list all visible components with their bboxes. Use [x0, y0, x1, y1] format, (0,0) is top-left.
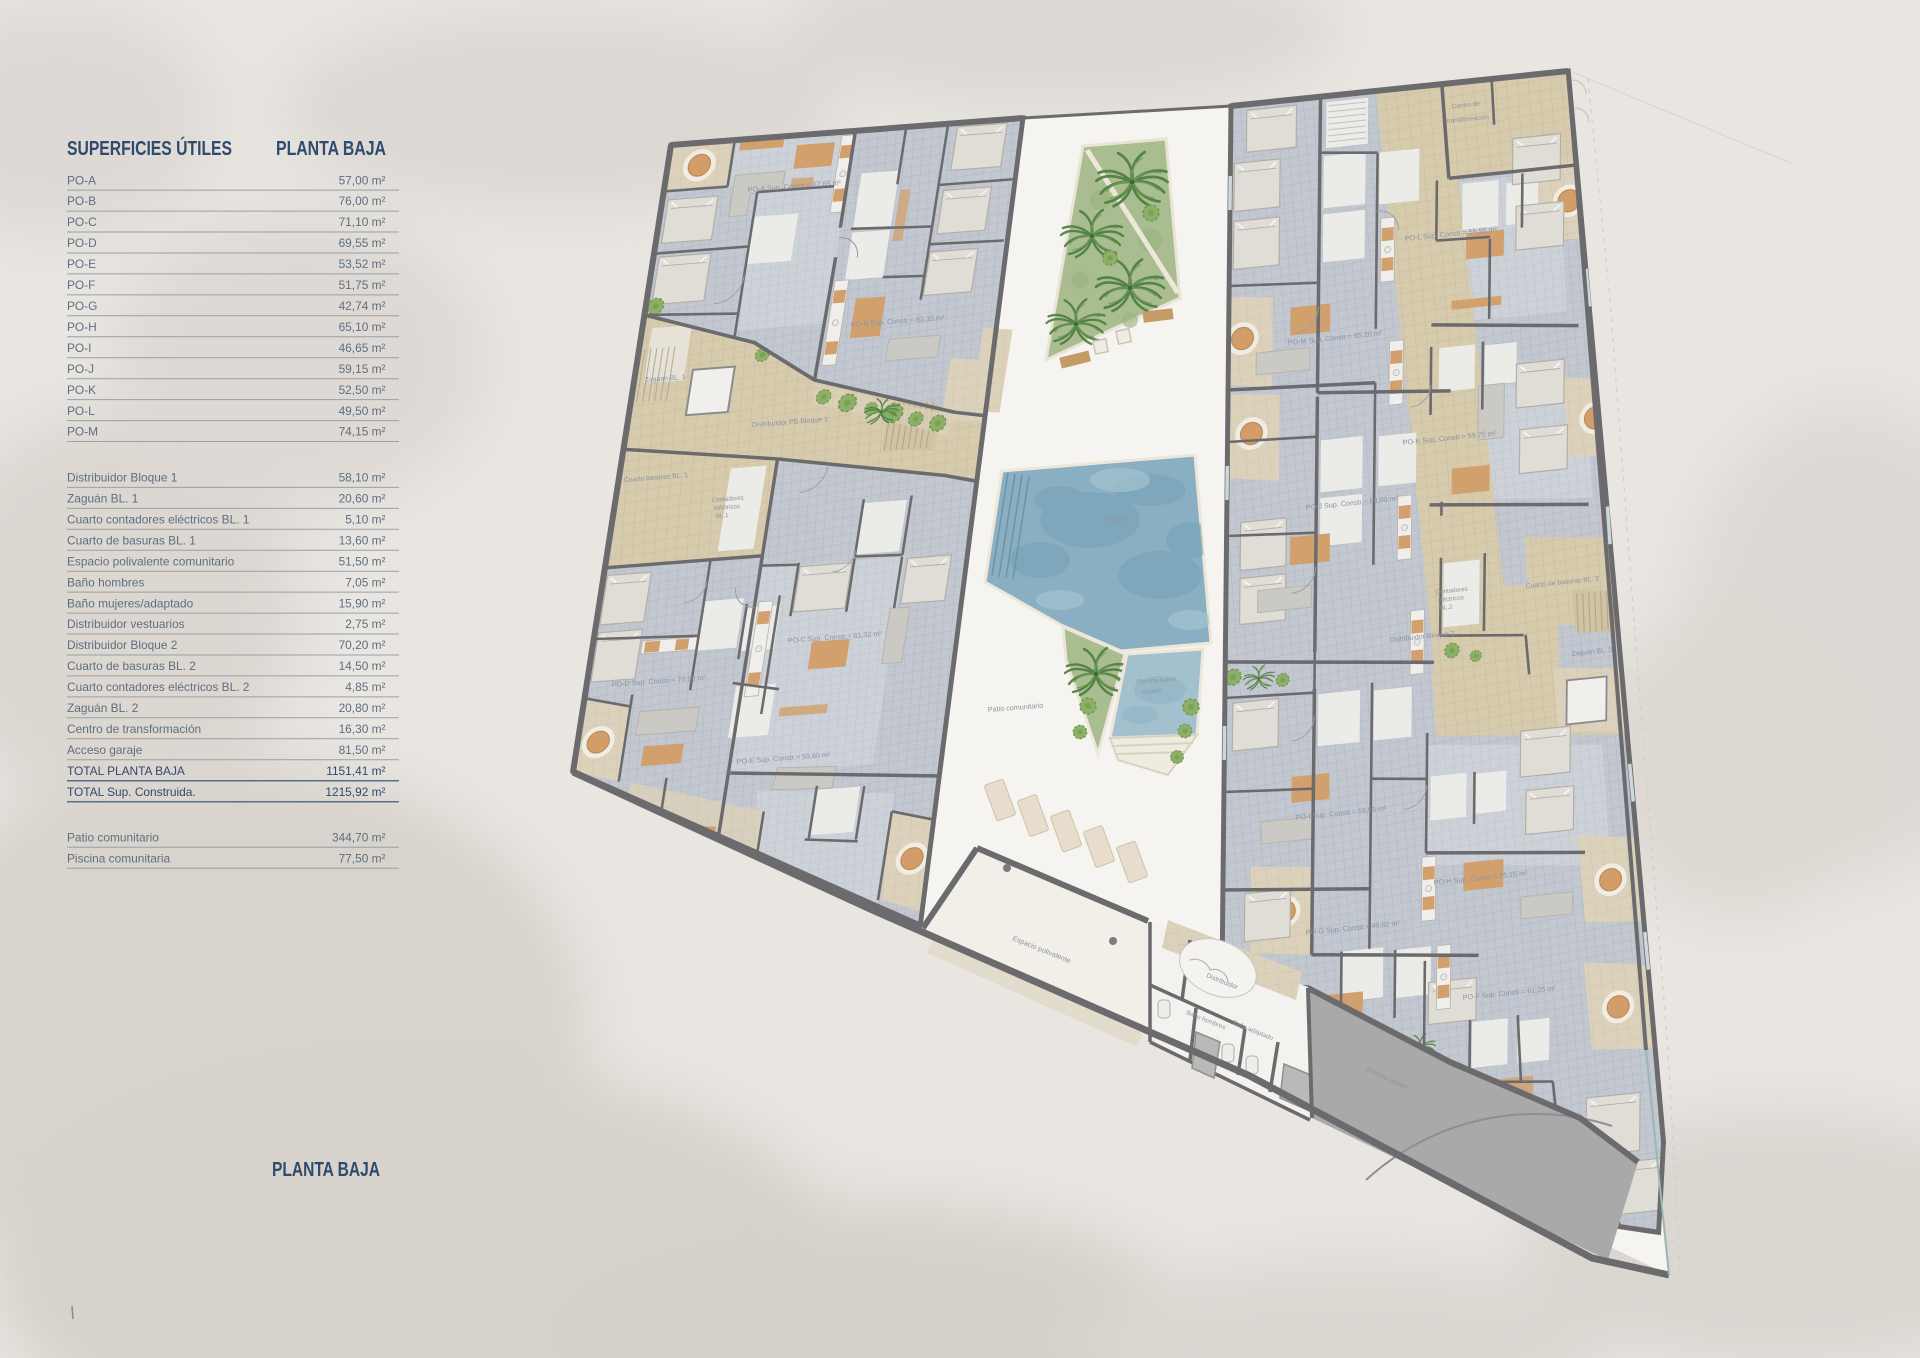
svg-text:46,65 m²: 46,65 m² — [339, 341, 386, 355]
svg-text:7,05 m²: 7,05 m² — [345, 575, 385, 589]
svg-text:PO-L: PO-L — [67, 404, 95, 418]
svg-text:1215,92 m²: 1215,92 m² — [325, 785, 385, 799]
svg-text:344,70 m²: 344,70 m² — [332, 831, 386, 845]
svg-text:Centro de transformación: Centro de transformación — [67, 722, 201, 736]
svg-text:74,15 m²: 74,15 m² — [339, 425, 386, 439]
svg-text:16,30 m²: 16,30 m² — [339, 722, 386, 736]
svg-text:53,52 m²: 53,52 m² — [339, 257, 386, 271]
svg-text:49,50 m²: 49,50 m² — [339, 404, 386, 418]
svg-text:4,85 m²: 4,85 m² — [345, 680, 385, 694]
svg-text:BL.2: BL.2 — [1439, 604, 1453, 612]
svg-text:PO-H: PO-H — [67, 320, 97, 334]
svg-text:TOTAL PLANTA BAJA: TOTAL PLANTA BAJA — [67, 764, 185, 778]
svg-text:77,50 m²: 77,50 m² — [339, 852, 386, 866]
svg-text:PO-I: PO-I — [67, 341, 91, 355]
svg-text:Cuarto contadores eléctricos B: Cuarto contadores eléctricos BL. 1 — [67, 513, 250, 527]
svg-text:57,00 m²: 57,00 m² — [339, 173, 386, 187]
svg-text:76,00 m²: 76,00 m² — [339, 194, 386, 208]
svg-text:PO-B: PO-B — [67, 194, 96, 208]
svg-text:Piscina comunitaria: Piscina comunitaria — [67, 852, 170, 866]
svg-text:Zaguán BL. 2: Zaguán BL. 2 — [67, 701, 139, 715]
svg-text:Patio comunitario: Patio comunitario — [67, 831, 159, 845]
svg-text:13,60 m²: 13,60 m² — [339, 534, 386, 548]
svg-text:PLANTA BAJA: PLANTA BAJA — [272, 1158, 380, 1181]
svg-text:5,10 m²: 5,10 m² — [345, 513, 385, 527]
svg-text:PO-E: PO-E — [67, 257, 96, 271]
svg-text:PO-D: PO-D — [67, 236, 97, 250]
svg-text:Baño hombres: Baño hombres — [67, 575, 144, 589]
svg-text:Cuarto de basuras BL. 2: Cuarto de basuras BL. 2 — [67, 659, 196, 673]
svg-text:81,50 m²: 81,50 m² — [339, 743, 386, 757]
svg-text:70,20 m²: 70,20 m² — [339, 638, 386, 652]
svg-text:Distribuidor Bloque 1: Distribuidor Bloque 1 — [67, 471, 178, 485]
svg-text:52,50 m²: 52,50 m² — [339, 383, 386, 397]
svg-text:PO-K: PO-K — [67, 383, 96, 397]
svg-text:PO-M: PO-M — [67, 425, 98, 439]
svg-text:20,80 m²: 20,80 m² — [339, 701, 386, 715]
svg-text:Zaguán BL. 1: Zaguán BL. 1 — [67, 492, 139, 506]
svg-text:Distribuidor vestuarios: Distribuidor vestuarios — [67, 617, 185, 631]
svg-text:1151,41 m²: 1151,41 m² — [326, 764, 385, 778]
svg-text:59,15 m²: 59,15 m² — [339, 362, 386, 376]
svg-text:Cuarto de basuras BL. 1: Cuarto de basuras BL. 1 — [67, 534, 196, 548]
svg-text:69,55 m²: 69,55 m² — [339, 236, 386, 250]
svg-text:15,90 m²: 15,90 m² — [339, 596, 386, 610]
svg-text:PO-G: PO-G — [67, 299, 97, 313]
svg-text:TOTAL Sup. Construida.: TOTAL Sup. Construida. — [67, 785, 196, 799]
svg-text:Cuarto contadores eléctricos B: Cuarto contadores eléctricos BL. 2 — [67, 680, 250, 694]
svg-text:42,74 m²: 42,74 m² — [339, 299, 386, 313]
svg-text:20,60 m²: 20,60 m² — [339, 492, 386, 506]
svg-text:SUPERFICIES ÚTILES: SUPERFICIES ÚTILES — [67, 136, 232, 160]
svg-text:71,10 m²: 71,10 m² — [339, 215, 386, 229]
svg-text:PLANTA BAJA: PLANTA BAJA — [276, 137, 386, 160]
svg-text:BL.1: BL.1 — [716, 512, 730, 520]
svg-text:58,10 m²: 58,10 m² — [339, 471, 386, 485]
svg-text:14,50 m²: 14,50 m² — [339, 659, 386, 673]
svg-text:65,10 m²: 65,10 m² — [339, 320, 386, 334]
svg-text:PO-C: PO-C — [67, 215, 97, 229]
svg-text:2,75 m²: 2,75 m² — [345, 617, 385, 631]
svg-text:PO-A: PO-A — [67, 173, 96, 187]
svg-text:Acceso garaje: Acceso garaje — [67, 743, 143, 757]
svg-text:51,75 m²: 51,75 m² — [339, 278, 386, 292]
svg-text:Espacio polivalente comunitari: Espacio polivalente comunitario — [67, 554, 235, 568]
svg-text:PO-F: PO-F — [67, 278, 95, 292]
svg-text:Baño mujeres/adaptado: Baño mujeres/adaptado — [67, 596, 194, 610]
svg-text:Distribuidor Bloque 2: Distribuidor Bloque 2 — [67, 638, 178, 652]
svg-text:PO-J: PO-J — [67, 362, 94, 376]
svg-text:51,50 m²: 51,50 m² — [339, 554, 386, 568]
